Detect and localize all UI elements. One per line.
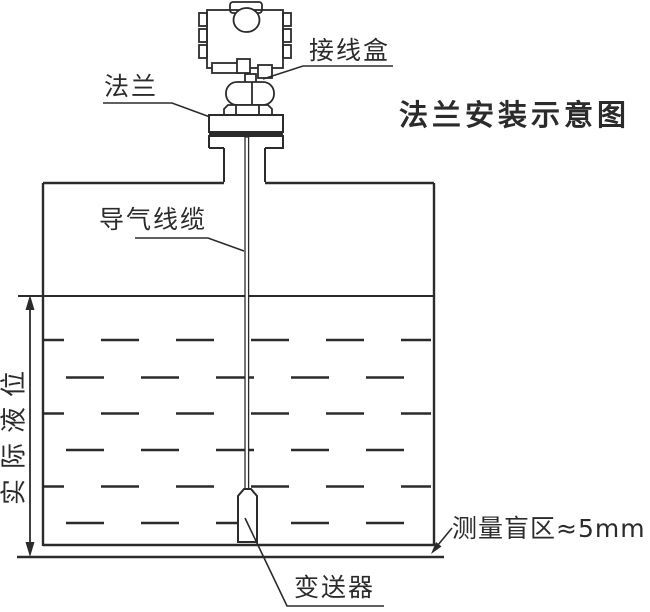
transmitter-head-drawing	[199, 2, 291, 118]
actual-level-label: 实际液位	[1, 361, 30, 505]
air-cable-line	[245, 137, 249, 489]
junction-box-label: 接线盒	[309, 37, 390, 65]
probe-transmitter-drawing	[238, 489, 257, 542]
blind-zone-label: 测量盲区≈5mm	[452, 515, 646, 543]
conduit-connection	[212, 63, 240, 73]
head-dome	[234, 8, 260, 32]
flange-leader	[103, 103, 210, 117]
flange-installation-diagram: 法兰安装示意图 接线盒 法兰 导气线缆 实际液位 测量盲区≈5mm 变送器	[0, 0, 650, 612]
coupling	[226, 82, 274, 105]
liquid-dashes	[43, 340, 431, 523]
air-cable-leader	[135, 238, 244, 251]
air-cable-label: 导气线缆	[99, 206, 207, 234]
diagram-title: 法兰安装示意图	[399, 100, 630, 132]
flange-label: 法兰	[104, 73, 158, 101]
transmitter-label: 变送器	[294, 574, 375, 602]
flange-plate	[209, 115, 283, 132]
tank-drawing	[17, 183, 444, 557]
